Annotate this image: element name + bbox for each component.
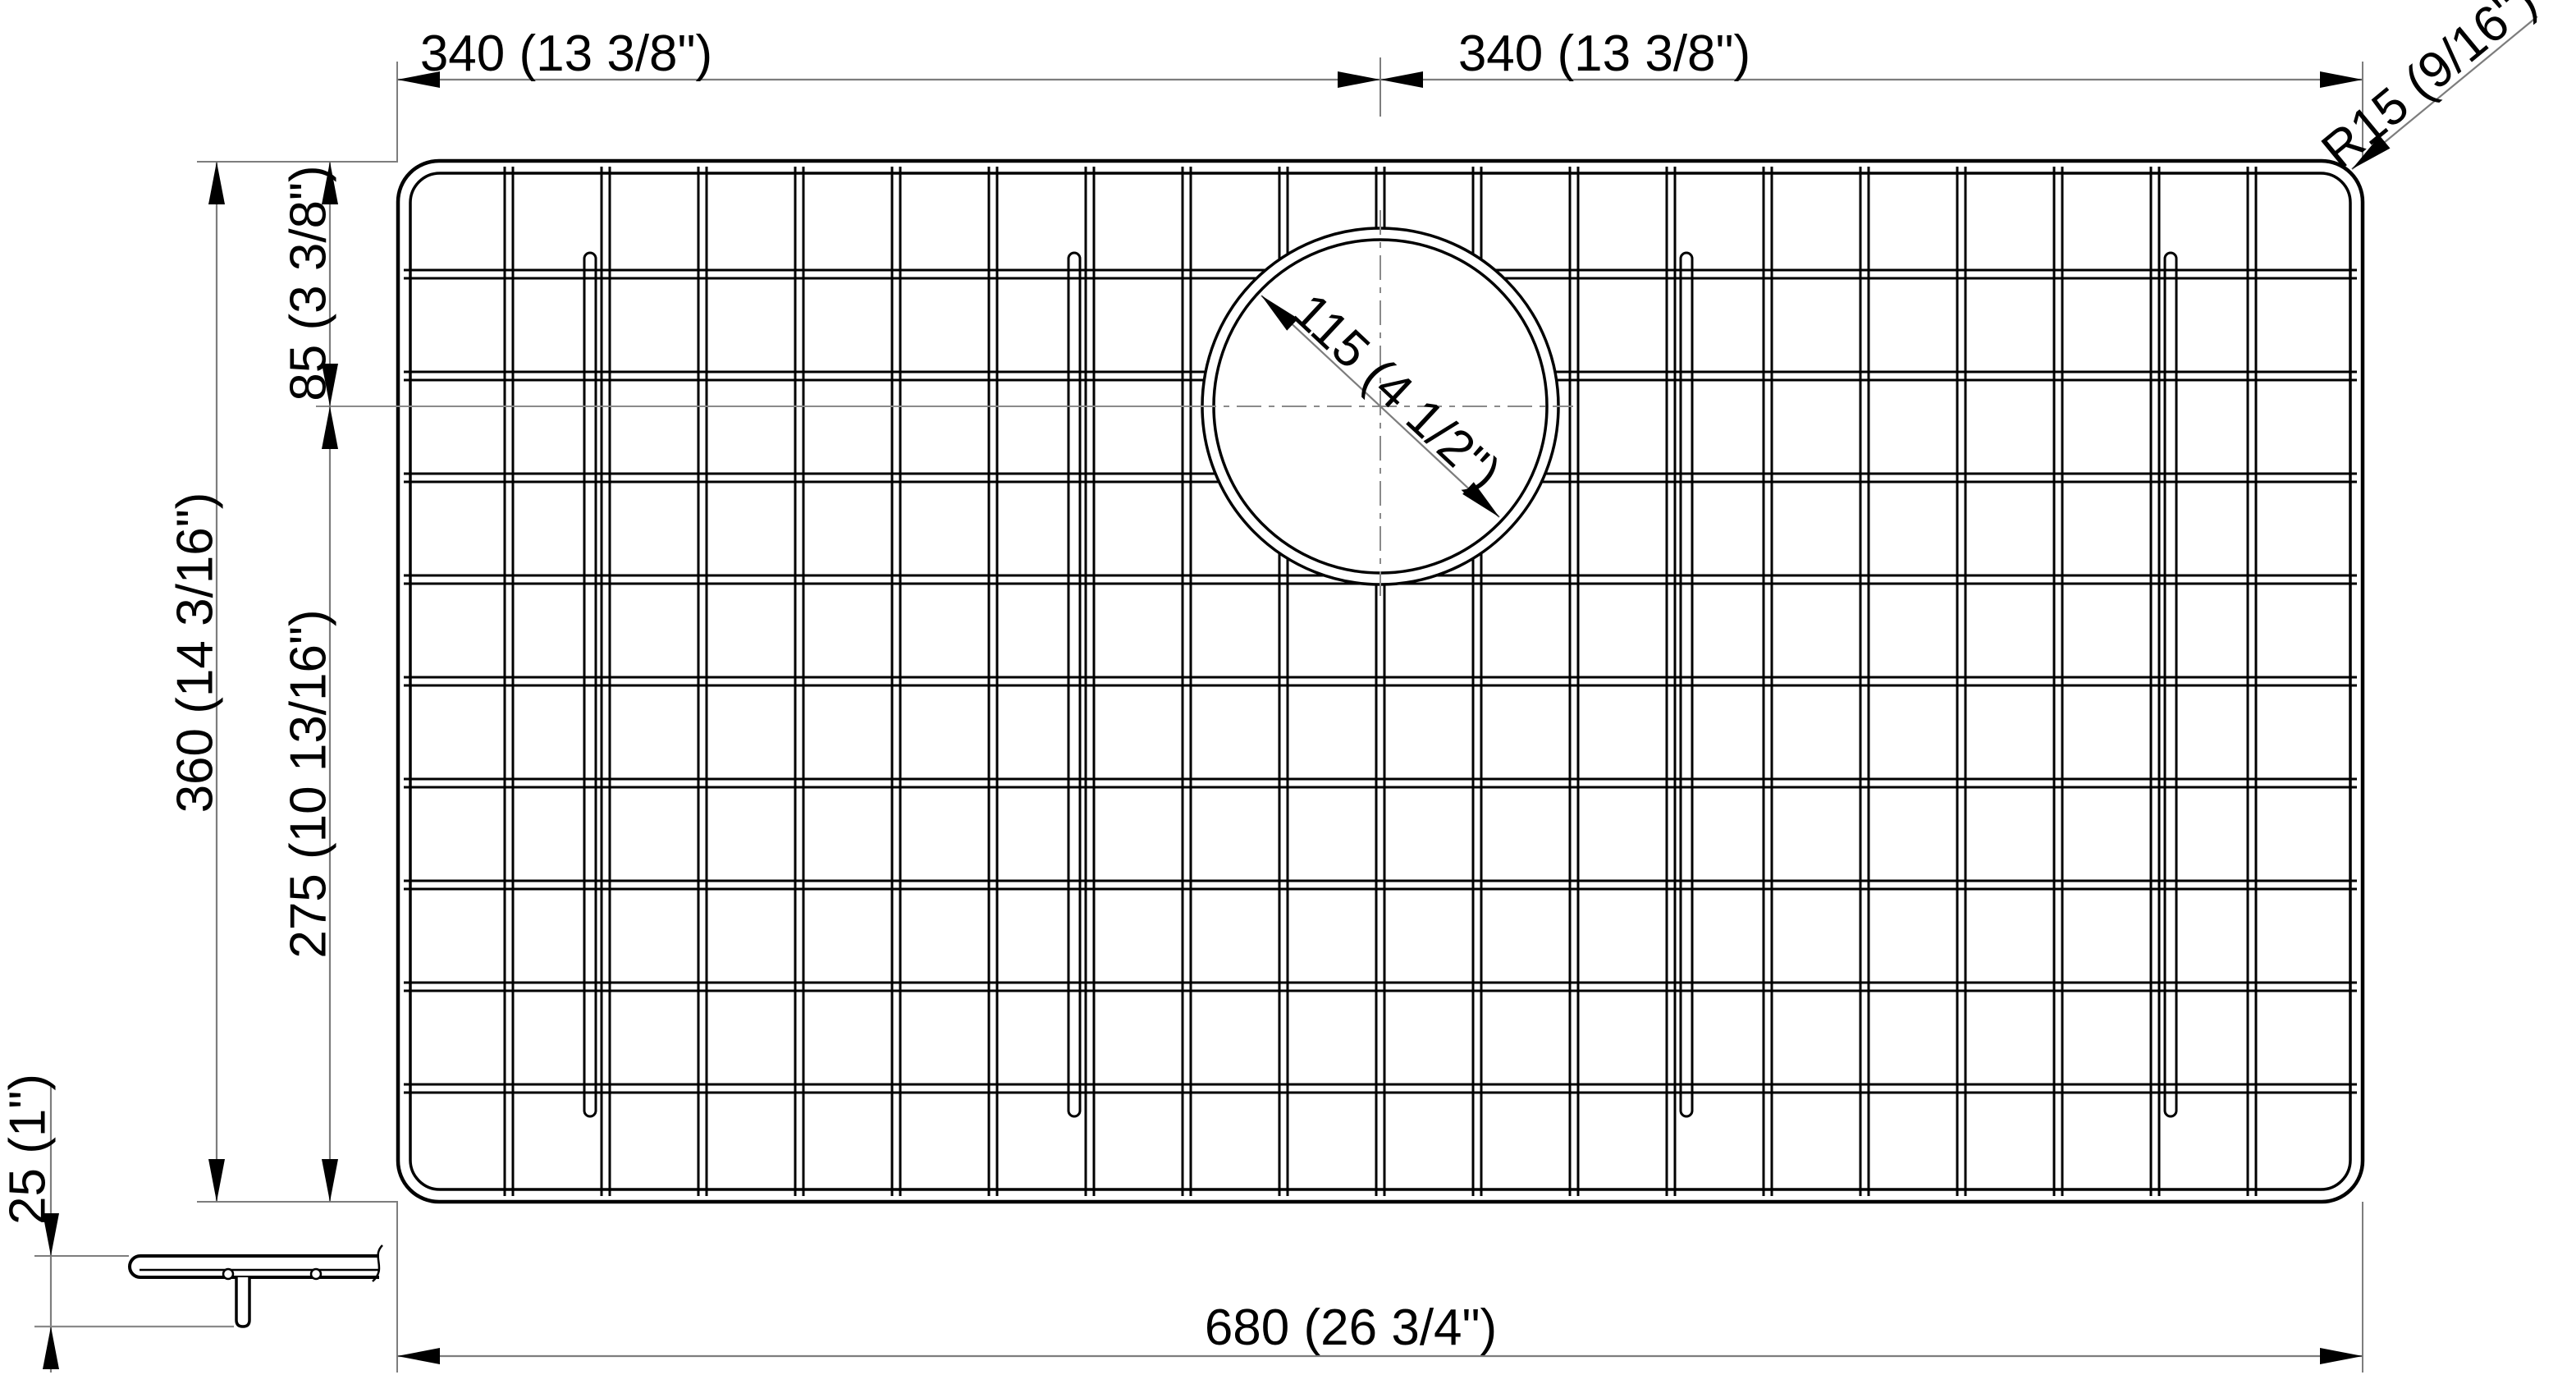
grid-frame-inner [410,173,2350,1189]
dimension-thickness: 25 (1") [0,1074,234,1373]
dimension-label-drain-offset-top: 85 (3 3/8") [281,165,337,401]
side-view-pin [311,1269,321,1279]
dimension-arrow [2320,1348,2363,1364]
dimension-overall-width: 680 (26 3/4") [397,1299,2363,1364]
dimension-arrow [397,1348,440,1364]
technical-drawing-canvas: 340 (13 3/8")340 (13 3/8")360 (14 3/16")… [0,0,2576,1384]
side-view-foot [236,1277,249,1327]
dimension-label-width-right-half: 340 (13 3/8") [1458,25,1750,82]
grid-side-view [130,1245,382,1327]
dimension-arrow [322,406,338,449]
side-view-bar [130,1256,379,1277]
dimension-label-drain-diameter: 115 (4 1/2") [1282,283,1511,502]
dimension-drain-offsets: 85 (3 3/8")275 (10 13/16") [281,162,339,1202]
dimension-label-width-left-half: 340 (13 3/8") [420,25,712,82]
dimension-arrow [208,162,225,204]
dimension-arrow [43,1327,59,1369]
dimension-label-overall-width: 680 (26 3/4") [1205,1299,1497,1356]
dimension-overall-depth: 360 (14 3/16") [167,162,226,1202]
dimension-arrow [322,1159,338,1202]
drawing-host: 340 (13 3/8")340 (13 3/8")360 (14 3/16")… [0,0,2576,1384]
dimension-label-overall-depth: 360 (14 3/16") [167,493,224,813]
dimension-label-drain-to-bottom: 275 (10 13/16") [281,609,337,958]
sink-grid-technical-drawing: 340 (13 3/8")340 (13 3/8")360 (14 3/16")… [0,0,2576,1384]
dimension-arrow [208,1159,225,1202]
dimension-corner-radius: R15 (9/16") [2312,0,2547,180]
dimension-arrow [1338,71,1380,88]
dimension-label-thickness: 25 (1") [0,1074,57,1225]
dimension-arrow [2320,71,2363,88]
dimension-arrow [1380,71,1423,88]
dimension-label-corner-radius: R15 (9/16") [2312,0,2547,180]
side-view-pin [223,1269,233,1279]
